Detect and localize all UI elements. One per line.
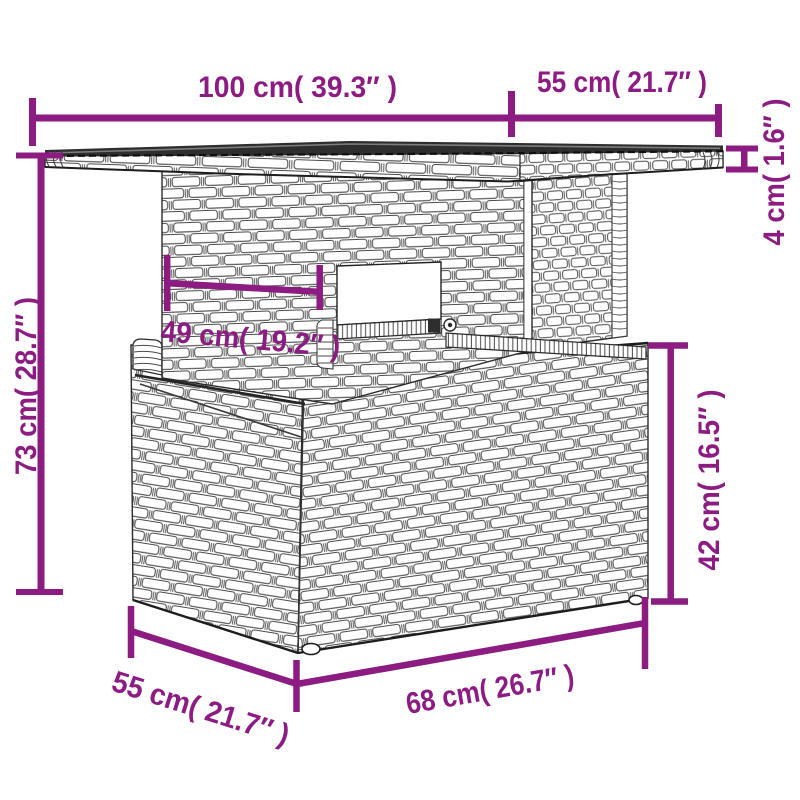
svg-text:73 cm( 28.7″ ): 73 cm( 28.7″ ) (10, 297, 43, 475)
svg-text:4 cm( 1.6″ ): 4 cm( 1.6″ ) (758, 99, 791, 246)
svg-text:42 cm( 16.5″ ): 42 cm( 16.5″ ) (693, 390, 726, 571)
svg-text:100 cm( 39.3″ ): 100 cm( 39.3″ ) (198, 71, 397, 104)
svg-text:55 cm( 21.7″ ): 55 cm( 21.7″ ) (537, 66, 707, 99)
